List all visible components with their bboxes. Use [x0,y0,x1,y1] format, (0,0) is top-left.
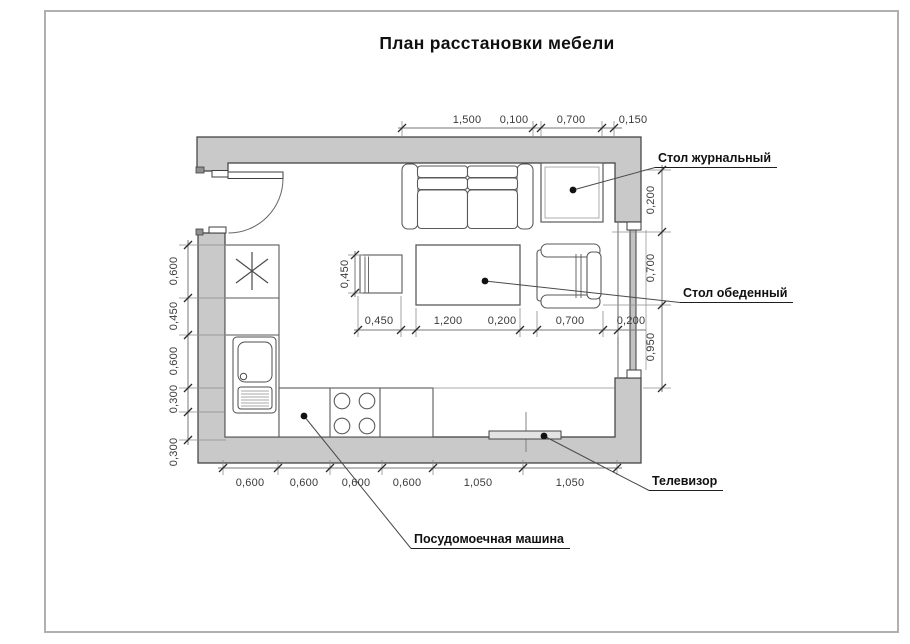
door-jamb-bottom [209,227,226,233]
sofa-back-cushion [468,166,518,178]
dining-table [416,245,520,305]
sofa [402,164,533,229]
sofa-arm-right [517,164,533,229]
window-cap-bottom [627,370,641,378]
dim-label: 0,150 [619,114,648,126]
dim-label: 0,600 [290,477,319,489]
burner [359,393,375,409]
dim-label: 1,050 [464,477,493,489]
window-cap-top [627,222,641,230]
dim-label: 0,600 [168,257,180,286]
dim-label: 0,450 [339,260,351,289]
leader-dot-dining-table [482,278,489,285]
dim-label: 0,200 [645,186,657,215]
dim-label: 0,450 [168,302,180,331]
dim-label: 0,300 [168,438,180,467]
sink-tap [240,373,246,379]
dim-label: 1,050 [556,477,585,489]
wall-end-caps [196,167,204,235]
stool-chair [360,255,402,293]
sink [233,337,276,413]
leader-dot-dishwasher [301,413,308,420]
burner [334,418,350,434]
window-glazing [630,230,636,370]
sofa-back-cushion [418,178,468,190]
tv-body [489,431,561,439]
door-leaf [228,172,283,179]
armchair-seat [537,250,594,301]
sofa-back-cushion [418,166,468,178]
dim-label: 0,600 [168,347,180,376]
door [228,172,283,233]
dim-label: 0,100 [500,114,529,126]
wall-end-top [196,167,204,173]
dim-label: 0,950 [645,333,657,362]
armchair-back [587,252,601,299]
door-jamb-top [212,171,228,178]
dim-label: 1,500 [453,114,482,126]
floor-plan-page: План расстановки мебели [0,0,910,644]
armchair [537,244,601,308]
dim-label: 0,600 [393,477,422,489]
sofa-seat-cushion [468,190,518,229]
dim-label: 0,450 [365,315,394,327]
wall-end-mid [196,229,203,235]
dim-label: 0,700 [645,254,657,283]
sofa-seat-cushion [418,190,468,229]
dim-label: 0,600 [236,477,265,489]
burner [334,393,350,409]
dim-label: 0,700 [557,114,586,126]
window [618,223,646,377]
label-tv: Телевизор [649,474,723,491]
dim-label: 0,300 [168,385,180,414]
label-dishwasher: Посудомоечная машина [411,532,570,549]
sofa-back-cushion [468,178,518,190]
dim-label: 1,200 [434,315,463,327]
leader-dot-tv [541,433,548,440]
dim-label: 0,700 [556,315,585,327]
sofa-arm-left [402,164,418,229]
dim-label: 0,200 [488,315,517,327]
leader-dot-coffee-table [570,187,577,194]
dim-label: 0,200 [617,315,646,327]
dim-label: 0,600 [342,477,371,489]
counter-bottom-row [279,388,433,437]
door-swing-arc [229,179,284,234]
burner [359,418,375,434]
label-dining-table: Стол обеденный [680,286,793,303]
label-coffee-table: Стол журнальный [655,151,777,168]
